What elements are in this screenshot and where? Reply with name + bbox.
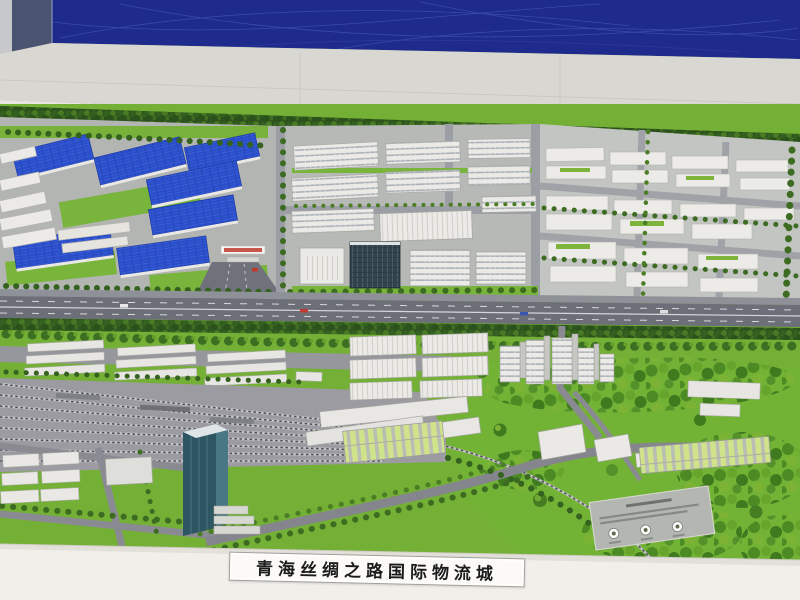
gate-banner-red-text xyxy=(224,248,262,252)
red-truck xyxy=(252,268,258,272)
upper-right-grid xyxy=(540,124,800,300)
upper-center-cluster xyxy=(276,124,540,300)
toll-canopy xyxy=(227,257,259,262)
model-title-text: 青海丝绸之路国际物流城 xyxy=(256,554,499,584)
large-production-hall xyxy=(380,210,473,241)
glass-hq-building xyxy=(350,242,400,288)
tower-front-face xyxy=(183,424,216,536)
model-landscape xyxy=(0,104,800,600)
model-scene xyxy=(0,0,800,600)
photo-of-scale-model: 青海丝绸之路国际物流城 xyxy=(0,0,800,600)
flat-roof-depot xyxy=(105,457,152,485)
office-building-right xyxy=(410,250,470,286)
